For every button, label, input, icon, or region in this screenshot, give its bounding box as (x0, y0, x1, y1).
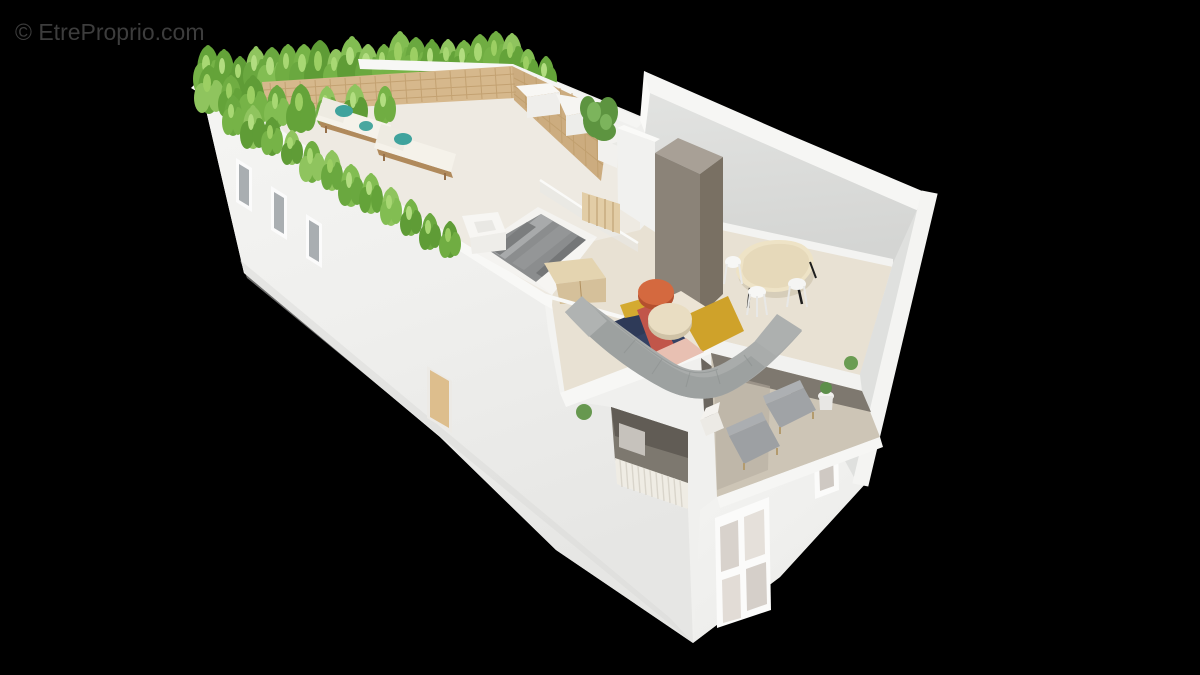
svg-text:© EtreProprio.com: © EtreProprio.com (15, 19, 205, 45)
